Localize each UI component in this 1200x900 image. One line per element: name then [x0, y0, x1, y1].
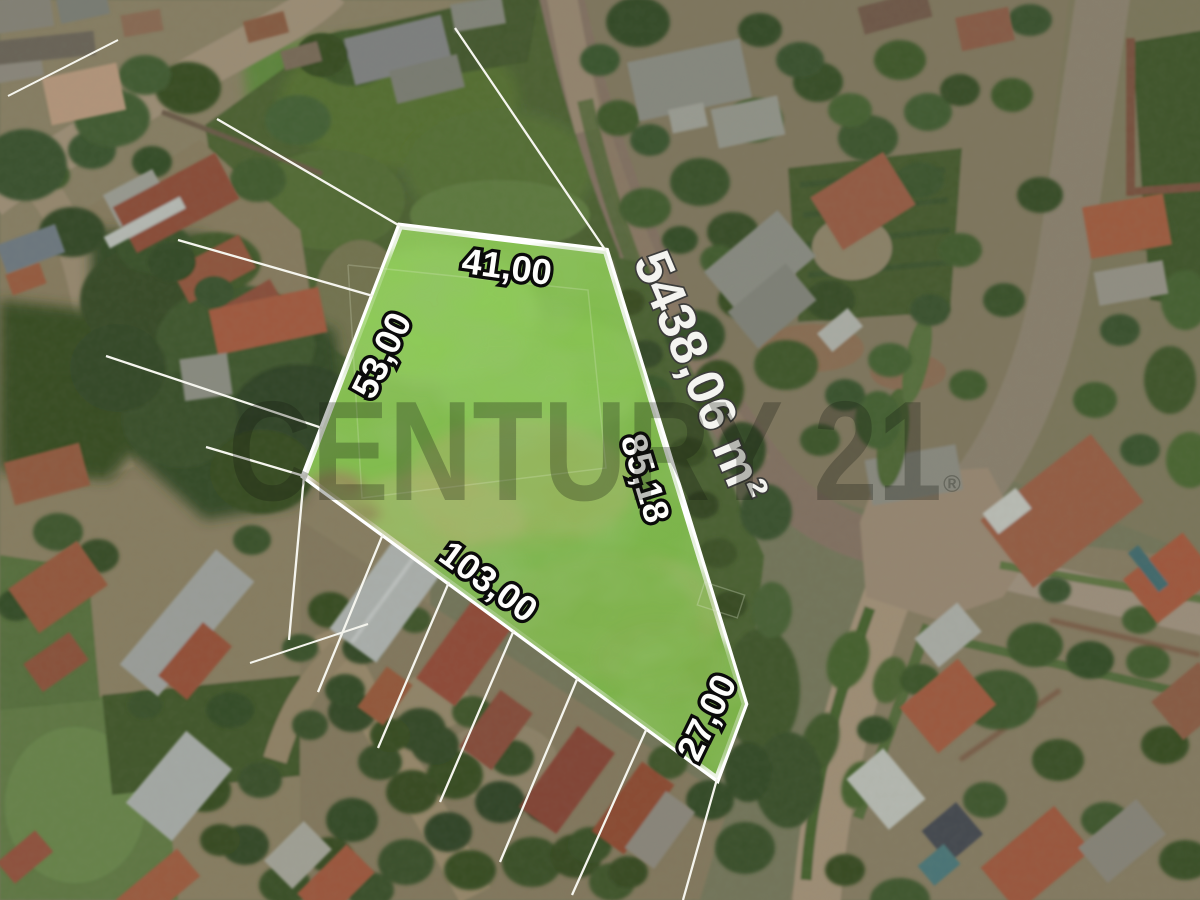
svg-text:®: ®	[943, 471, 961, 498]
svg-text:CENTURY 21: CENTURY 21	[228, 372, 942, 531]
